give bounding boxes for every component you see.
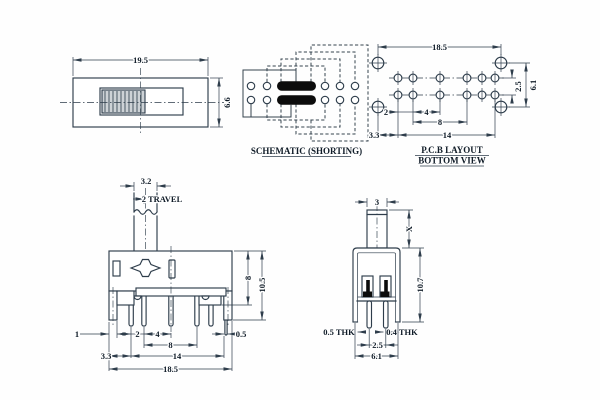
dim-side-leg-thk: 0.5 THK — [323, 327, 355, 337]
dim-pcb-hole-span: 6.1 — [528, 80, 538, 91]
dim-front-stem: 3.2 — [141, 176, 152, 186]
dim-side-stem-h: X — [404, 225, 414, 232]
dim-front-p14: 14 — [173, 351, 182, 361]
dim-front-pin-thk: 0.5 — [236, 329, 247, 339]
dim-front-total-w: 18.5 — [163, 364, 178, 374]
dim-top-height: 6.6 — [222, 97, 232, 108]
front-shoulder-left — [117, 291, 134, 305]
dim-side-body-h: 10.7 — [415, 277, 425, 293]
side-stem — [367, 210, 387, 248]
dim-side-leg-span: 6.1 — [371, 351, 382, 361]
front-body — [109, 251, 232, 291]
dim-top-width: 19.5 — [133, 55, 148, 65]
mounting-holes — [369, 54, 510, 116]
schematic-view: SCHEMATIC (SHORTING) — [243, 45, 368, 157]
front-base-plate — [136, 288, 226, 296]
pcb-pin-holes — [394, 71, 499, 102]
dim-pcb-edge: 3.3 — [369, 130, 380, 140]
pcb-layout-view: 18.5 2.5 6.1 — [369, 42, 538, 166]
front-view: 3.2 2 TRAVEL — [75, 176, 267, 374]
dim-pcb-p8: 8 — [438, 117, 442, 127]
dim-side-stem: 3 — [375, 197, 379, 207]
dim-front-travel: 2 TRAVEL — [142, 194, 183, 204]
dim-front-p12: 2 — [135, 329, 139, 339]
dim-pcb-row-pitch: 2.5 — [513, 81, 523, 92]
dim-front-edge: 3.3 — [101, 351, 112, 361]
shorting-bar-pole1 — [277, 81, 316, 90]
top-view: 19.5 6.6 — [60, 55, 232, 134]
side-view: 3 X 10.7 0.5 THK — [323, 197, 425, 361]
slider-knob — [102, 90, 145, 113]
pcb-caption-line1: P.C.B LAYOUT — [421, 145, 483, 155]
dim-front-leg: 1 — [75, 329, 79, 339]
slide-switch-drawing: 19.5 6.6 — [0, 0, 600, 400]
technical-drawing-page: 19.5 6.6 — [0, 0, 600, 400]
dim-side-pin-pitch: 2.5 — [372, 340, 383, 350]
shorting-bar-pole2 — [277, 95, 316, 104]
schematic-caption: SCHEMATIC (SHORTING) — [251, 146, 362, 156]
dim-pcb-total: 18.5 — [432, 42, 447, 52]
dim-pcb-p14: 14 — [443, 130, 452, 140]
dim-front-total-h: 10.5 — [257, 278, 267, 293]
side-body — [353, 248, 400, 322]
pcb-caption-line2: BOTTOM VIEW — [418, 156, 485, 166]
dim-side-pin-thk: 0.4 THK — [386, 327, 418, 337]
dim-pcb-p12: 2 — [384, 107, 388, 117]
dim-front-body8: 8 — [243, 276, 253, 280]
dim-front-p8: 8 — [168, 340, 172, 350]
